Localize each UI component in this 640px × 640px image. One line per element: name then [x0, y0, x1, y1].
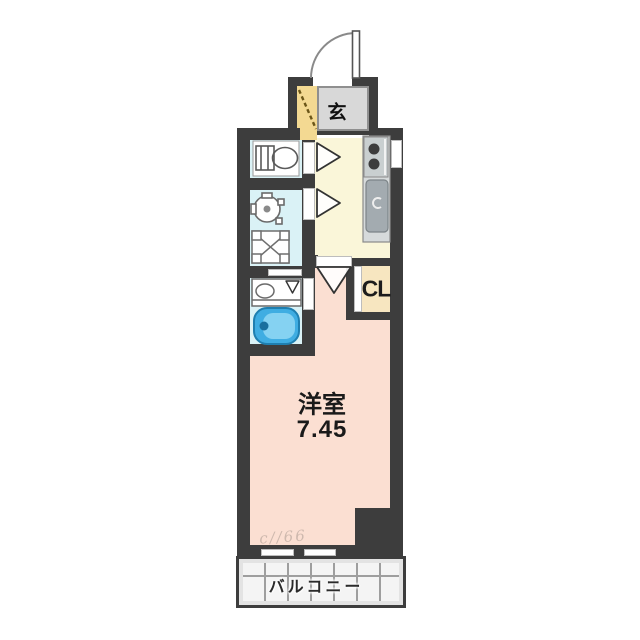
closet-label: CL: [362, 276, 391, 303]
watermark-text: c//66: [259, 526, 308, 547]
entrance-wall-top-right: [352, 77, 378, 86]
entrance-step-edge: [317, 131, 369, 135]
balcony-label: バルコニー: [269, 573, 364, 597]
window-balcony-left: [261, 549, 294, 556]
door-gap-washroom-bath: [268, 269, 302, 276]
door-gap-bath: [303, 278, 314, 310]
wall-left: [237, 128, 250, 557]
wall-top-left: [237, 128, 300, 140]
floor-plan: 玄 CL 洋室 7.45 c//66 バルコニー: [0, 0, 640, 640]
entrance-step-strip: [297, 86, 317, 140]
door-gap-toilet: [303, 142, 315, 174]
door-gap-washroom: [303, 188, 315, 220]
entrance-door-swing-icon: [311, 31, 360, 78]
room-name-label: 洋室: [298, 385, 346, 420]
wall-top-right: [369, 128, 403, 140]
wall-below-bath: [237, 344, 315, 356]
room-size-label: 7.45: [297, 416, 348, 444]
window-kitchen: [391, 140, 402, 168]
window-balcony-right: [304, 549, 336, 556]
wall-right: [390, 128, 403, 557]
door-gap-main-room: [316, 256, 352, 267]
kitchen-floor: [315, 138, 390, 268]
entrance-label: 玄: [327, 98, 346, 125]
entrance-wall-top-left: [288, 77, 313, 86]
